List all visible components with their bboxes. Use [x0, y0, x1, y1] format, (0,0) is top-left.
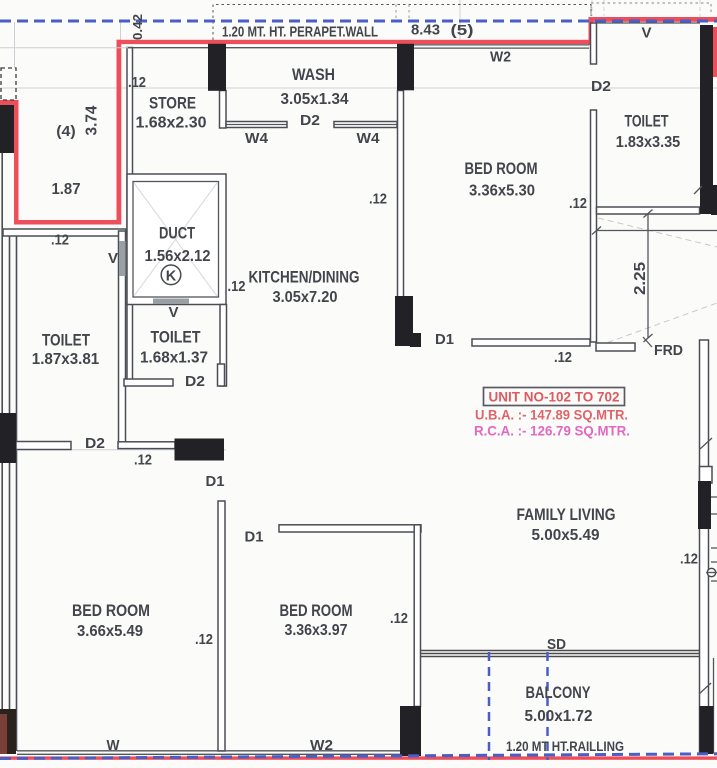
svg-text:3.36x3.97: 3.36x3.97	[285, 622, 348, 639]
svg-text:D1: D1	[245, 529, 264, 546]
svg-text:FAMILY LIVING: FAMILY LIVING	[517, 505, 616, 524]
svg-text:.12: .12	[680, 551, 698, 568]
svg-text:1.20 MT HT.RAILLING: 1.20 MT HT.RAILLING	[506, 739, 624, 754]
svg-text:FRD: FRD	[654, 342, 683, 359]
svg-text:1.83x3.35: 1.83x3.35	[616, 134, 681, 151]
svg-text:D2: D2	[85, 435, 105, 452]
svg-text:W4: W4	[357, 130, 381, 147]
svg-text:V: V	[168, 304, 178, 321]
svg-text:D1: D1	[206, 473, 225, 490]
svg-text:1.68x2.30: 1.68x2.30	[136, 115, 207, 132]
svg-text:TOILET: TOILET	[151, 328, 202, 347]
svg-text:3.36x5.30: 3.36x5.30	[469, 183, 535, 200]
svg-text:1.87: 1.87	[52, 181, 81, 198]
svg-text:.12: .12	[569, 195, 587, 212]
svg-text:K: K	[166, 268, 177, 285]
svg-text:D2: D2	[185, 373, 205, 390]
svg-text:SD: SD	[547, 636, 566, 653]
svg-text:1.87x3.81: 1.87x3.81	[32, 351, 100, 368]
svg-text:D2: D2	[300, 112, 320, 129]
svg-text:3.66x5.49: 3.66x5.49	[77, 623, 143, 640]
svg-text:BALCONY: BALCONY	[526, 683, 592, 702]
svg-text:3.74: 3.74	[84, 105, 101, 135]
svg-text:.12: .12	[390, 610, 408, 627]
svg-text:W4: W4	[245, 130, 269, 147]
svg-text:1.56x2.12: 1.56x2.12	[145, 248, 211, 265]
svg-text:BED ROOM: BED ROOM	[465, 159, 538, 178]
svg-text:5.00x5.49: 5.00x5.49	[532, 527, 600, 544]
svg-text:(5): (5)	[451, 22, 474, 39]
svg-text:WASH: WASH	[292, 65, 335, 84]
svg-text:8.43: 8.43	[411, 22, 440, 39]
svg-text:W2: W2	[490, 49, 511, 66]
svg-text:W2: W2	[310, 737, 333, 754]
svg-text:.12: .12	[369, 191, 387, 208]
svg-text:2.25: 2.25	[632, 262, 649, 295]
svg-text:KITCHEN/DINING: KITCHEN/DINING	[249, 268, 360, 287]
svg-text:DUCT: DUCT	[159, 224, 195, 243]
svg-text:V: V	[108, 250, 118, 267]
svg-text:.12: .12	[228, 278, 246, 295]
svg-text:.12: .12	[51, 232, 69, 249]
svg-text:3.05x7.20: 3.05x7.20	[273, 289, 338, 306]
svg-text:TOILET: TOILET	[625, 112, 669, 131]
svg-text:STORE: STORE	[149, 94, 196, 113]
svg-text:BED ROOM: BED ROOM	[72, 601, 150, 620]
svg-text:.12: .12	[195, 631, 213, 648]
svg-text:D1: D1	[435, 331, 454, 348]
svg-text:D2: D2	[591, 78, 611, 95]
svg-text:BED ROOM: BED ROOM	[280, 601, 353, 620]
svg-text:.12: .12	[554, 349, 572, 366]
svg-text:0.42: 0.42	[130, 14, 145, 40]
svg-text:V: V	[641, 25, 651, 42]
svg-text:1.20 MT. HT. PERAPET.WALL: 1.20 MT. HT. PERAPET.WALL	[222, 24, 378, 41]
svg-text:(4): (4)	[56, 123, 76, 140]
svg-text:.12: .12	[134, 452, 152, 469]
svg-text:.12: .12	[128, 74, 146, 91]
svg-text:3.05x1.34: 3.05x1.34	[281, 91, 349, 108]
svg-text:TOILET: TOILET	[42, 331, 90, 350]
svg-text:UNIT NO-102 TO 702: UNIT NO-102 TO 702	[489, 389, 620, 405]
svg-text:1.68x1.37: 1.68x1.37	[140, 350, 208, 367]
svg-text:R.C.A. :- 126.79 SQ.MTR.: R.C.A. :- 126.79 SQ.MTR.	[474, 423, 630, 439]
svg-text:W: W	[107, 737, 121, 754]
svg-text:5.00x1.72: 5.00x1.72	[525, 708, 593, 725]
svg-text:U.B.A. :- 147.89 SQ.MTR.: U.B.A. :- 147.89 SQ.MTR.	[475, 407, 628, 423]
